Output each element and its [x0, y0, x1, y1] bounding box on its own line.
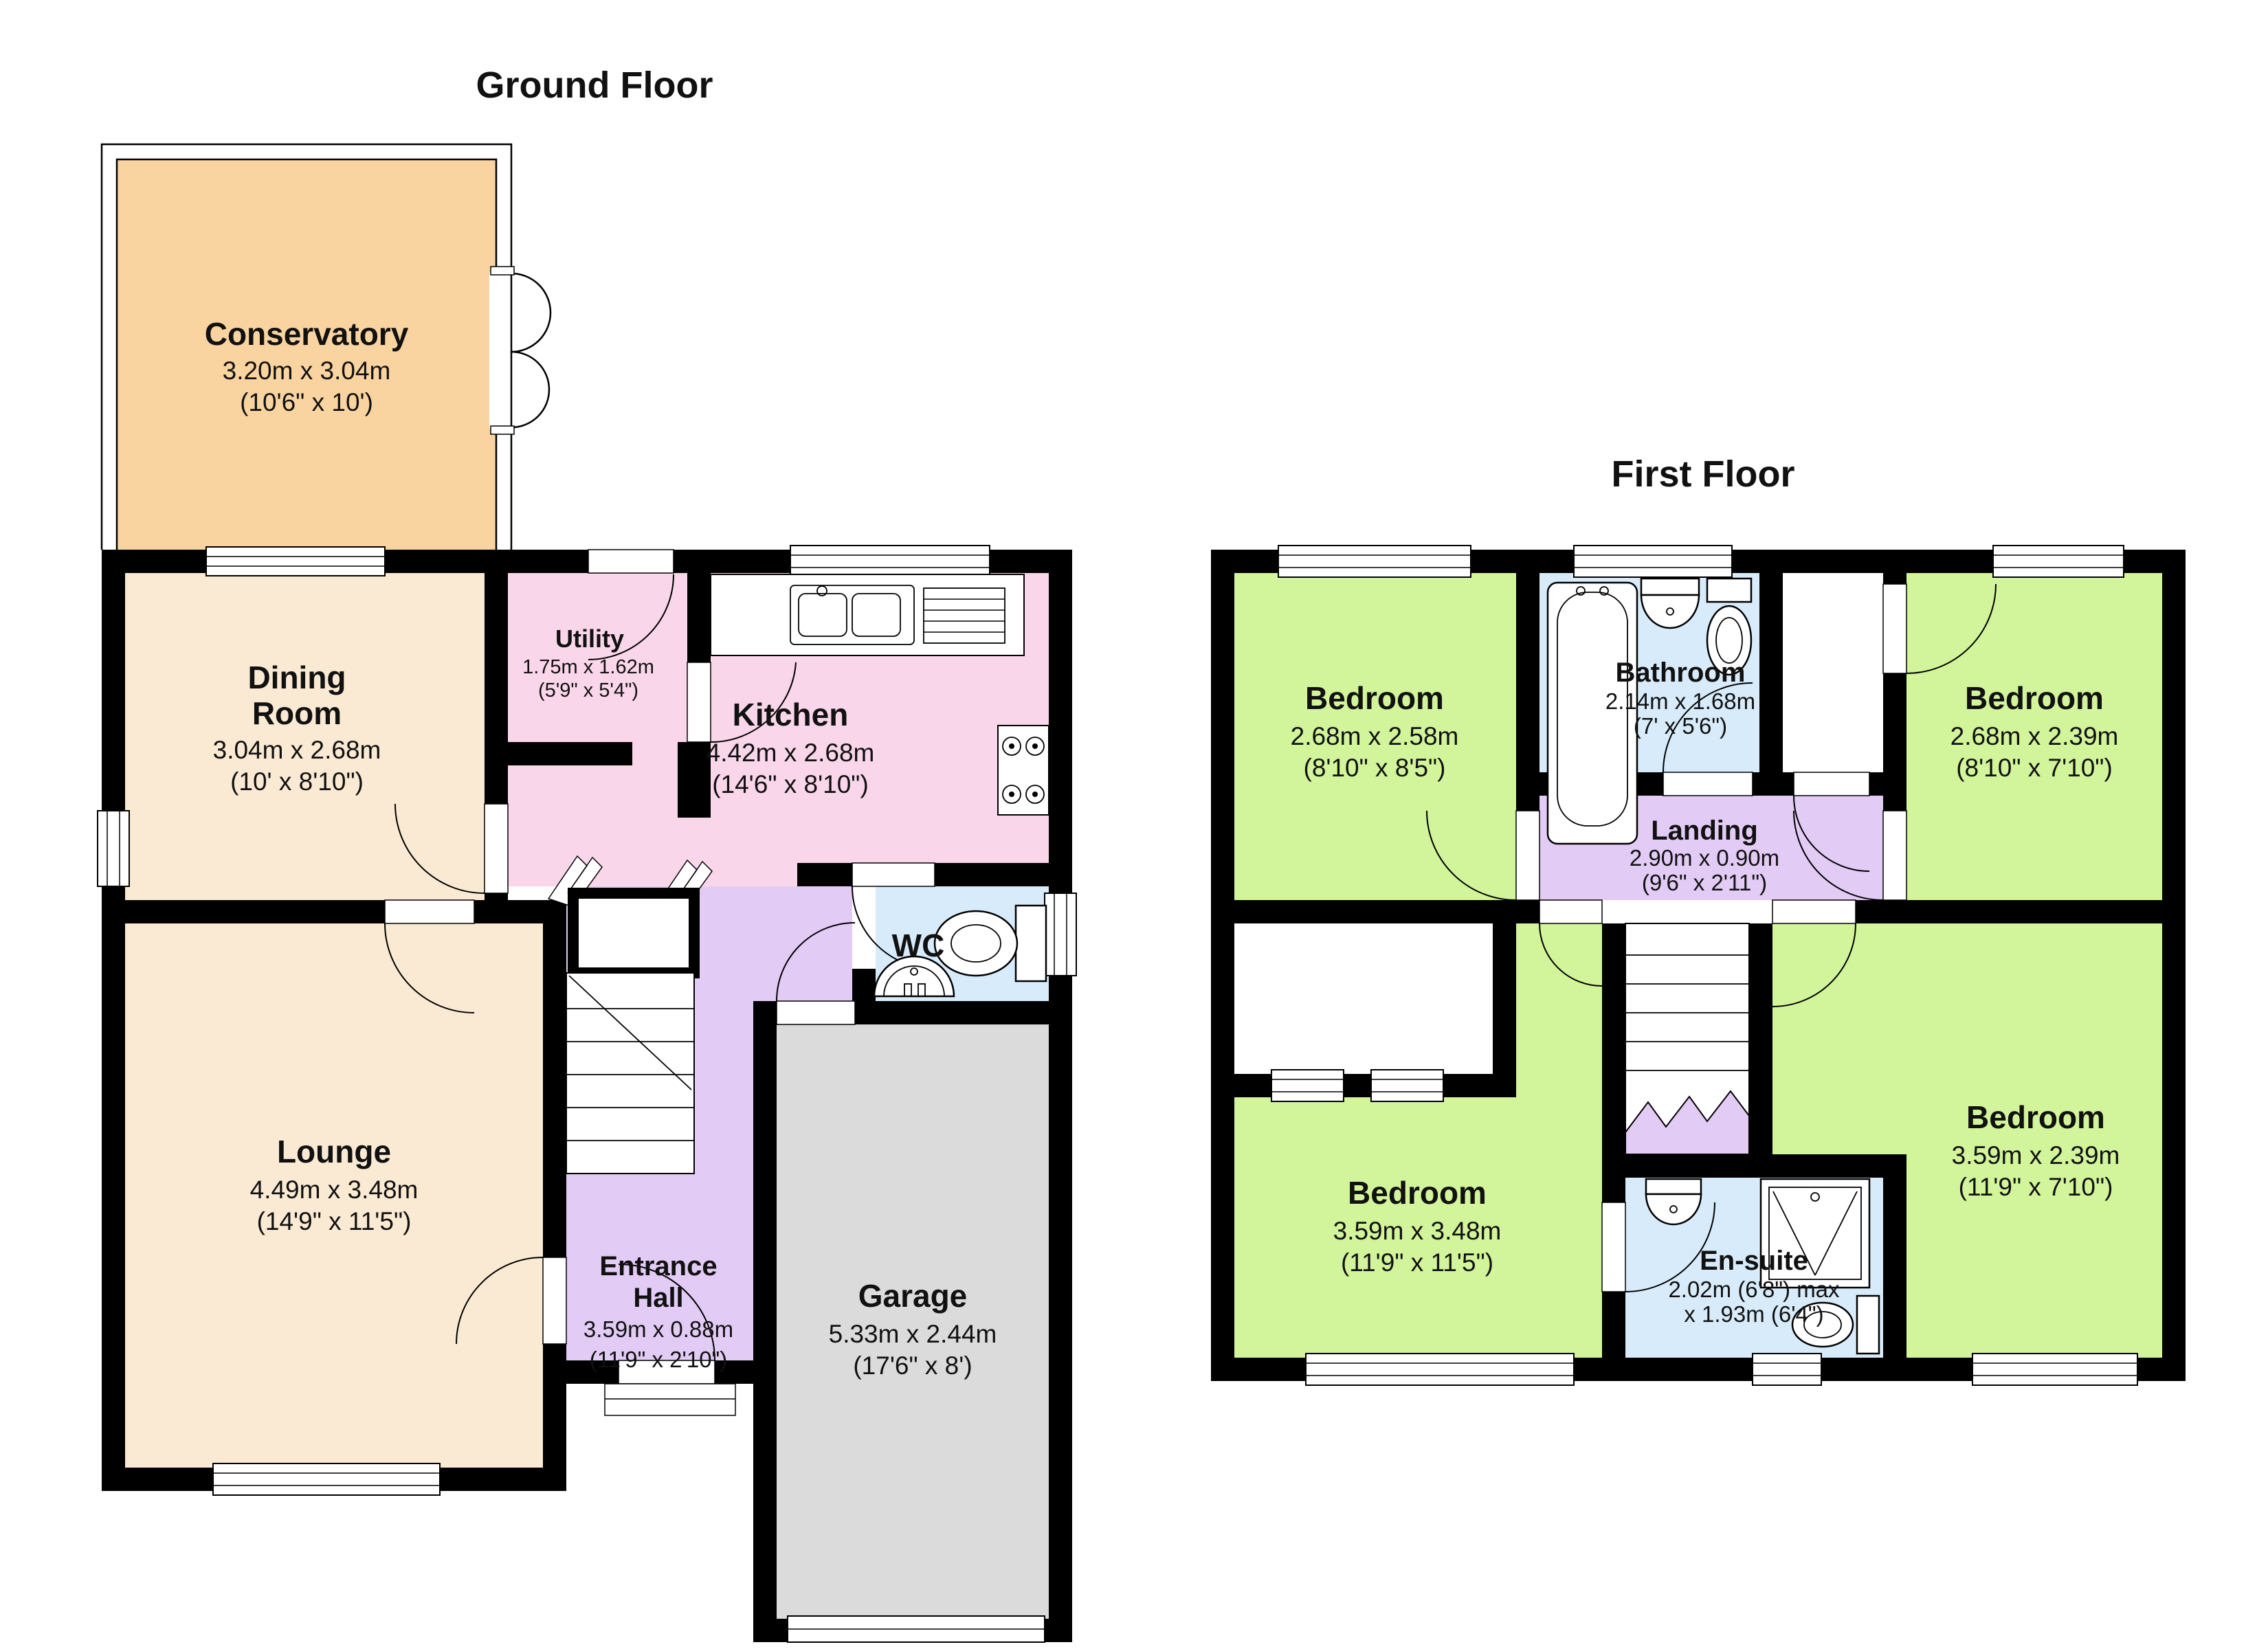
svg-text:(11'9" x 7'10"): (11'9" x 7'10") — [1959, 1173, 2113, 1201]
wall — [1211, 1074, 1516, 1097]
bedroom4-window — [1972, 1354, 2137, 1385]
svg-text:Hall: Hall — [633, 1283, 683, 1313]
lounge-window — [213, 1463, 440, 1495]
svg-text:2.68m x 2.58m: 2.68m x 2.58m — [1291, 722, 1459, 750]
wall — [852, 969, 876, 1001]
bedroom2-door-gap — [1883, 811, 1906, 900]
wall — [753, 1024, 777, 1642]
bedroom4-door-gap — [1772, 900, 1856, 923]
svg-text:(14'6" x 8'10"): (14'6" x 8'10") — [712, 770, 869, 798]
wall — [1749, 923, 1772, 1178]
wall — [543, 900, 566, 1491]
svg-text:Bedroom: Bedroom — [1305, 680, 1444, 716]
bedroom3-window — [1306, 1354, 1574, 1385]
bedroom1-window — [1278, 546, 1471, 577]
label-bedroom-2: Bedroom 2.68m x 2.39m (8'10" x 7'10") — [1950, 680, 2119, 782]
svg-text:3.59m x 0.88m: 3.59m x 0.88m — [583, 1316, 733, 1342]
svg-text:2.14m x 1.68m: 2.14m x 1.68m — [1605, 688, 1755, 714]
dining-door-gap — [485, 804, 508, 893]
svg-text:5.33m x 2.44m: 5.33m x 2.44m — [829, 1320, 997, 1348]
svg-text:Room: Room — [252, 695, 342, 731]
label-landing: Landing 2.90m x 0.90m (9'6" x 2'11") — [1630, 816, 1779, 895]
svg-text:4.49m x 3.48m: 4.49m x 3.48m — [250, 1176, 419, 1204]
door-jamb — [491, 267, 514, 275]
wall — [508, 742, 632, 765]
svg-text:Landing: Landing — [1651, 816, 1758, 846]
wc-door-gap — [852, 863, 935, 886]
room-conservatory — [117, 159, 496, 550]
svg-text:(9'6" x 2'11"): (9'6" x 2'11") — [1642, 870, 1767, 895]
front-door-step — [605, 1384, 735, 1415]
bedroom2-window — [1993, 546, 2124, 577]
utility-kitchen-door-gap — [687, 662, 711, 742]
bathroom-door-gap — [1663, 772, 1753, 796]
wall — [1211, 573, 1234, 1358]
svg-text:Utility: Utility — [555, 625, 624, 653]
floor-plan-first: First Floor Bedroom 2.68m x 2.58m (8'10"… — [1211, 453, 2186, 1385]
svg-text:(10' x 8'10"): (10' x 8'10") — [230, 767, 364, 796]
label-bedroom-1: Bedroom 2.68m x 2.58m (8'10" x 8'5") — [1291, 680, 1459, 782]
svg-text:3.59m x 2.39m: 3.59m x 2.39m — [1952, 1141, 2120, 1169]
svg-text:Conservatory: Conservatory — [205, 316, 409, 352]
room-bedroom-3 — [1234, 923, 1602, 1358]
wall — [687, 573, 711, 662]
ensuite-window — [1753, 1354, 1821, 1385]
wall — [1602, 923, 1625, 1178]
svg-text:Kitchen: Kitchen — [733, 697, 849, 732]
svg-text:(8'10" x 7'10"): (8'10" x 7'10") — [1956, 754, 2113, 782]
floorplan-drawing: Ground Floor Conservatory 3.20m x 3.04m … — [0, 0, 2268, 1649]
kitchen-counter — [711, 574, 1024, 655]
svg-text:(11'9" x 2'10"): (11'9" x 2'10") — [590, 1347, 728, 1372]
hob-icon — [998, 726, 1049, 815]
stairs-ground — [566, 973, 694, 1174]
cupboard-door-gap — [1883, 584, 1906, 673]
floorplan-page: Ground Floor Conservatory 3.20m x 3.04m … — [0, 0, 2268, 1649]
understairs-cupboard — [573, 893, 694, 973]
label-bedroom-4: Bedroom 3.59m x 2.39m (11'9" x 7'10") — [1952, 1099, 2120, 1201]
label-bedroom-3: Bedroom 3.59m x 3.48m (11'9" x 11'5") — [1333, 1175, 1502, 1277]
stairs-first — [1625, 923, 1749, 1154]
svg-text:(5'9" x 5'4"): (5'9" x 5'4") — [538, 680, 638, 702]
wc-window — [1045, 893, 1076, 976]
floor-plan-ground: Ground Floor Conservatory 3.20m x 3.04m … — [98, 65, 1076, 1642]
door-jamb — [491, 426, 514, 434]
svg-text:(17'6" x 8'): (17'6" x 8') — [853, 1351, 972, 1380]
utility-door-gap — [588, 550, 674, 573]
wall — [1049, 550, 1072, 1642]
wall — [1883, 900, 2186, 923]
svg-text:Dining: Dining — [247, 660, 346, 695]
kitchen-window — [790, 546, 990, 577]
garage-door-gap — [777, 1001, 855, 1024]
svg-text:(7' x 5'6"): (7' x 5'6") — [1634, 713, 1727, 739]
svg-text:Entrance: Entrance — [599, 1251, 717, 1281]
svg-text:3.59m x 3.48m: 3.59m x 3.48m — [1333, 1217, 1502, 1245]
wall — [1211, 900, 1539, 923]
toilet-icon — [935, 906, 1046, 981]
svg-text:(11'9" x 11'5"): (11'9" x 11'5") — [1341, 1248, 1493, 1277]
dining-window — [98, 811, 129, 886]
wall — [1883, 1178, 1906, 1358]
ensuite-door-gap — [1602, 1202, 1625, 1292]
svg-text:4.42m x 2.68m: 4.42m x 2.68m — [707, 739, 875, 767]
wall — [2162, 573, 2186, 1358]
wall — [102, 573, 125, 1491]
svg-text:x 1.93m (6'4"): x 1.93m (6'4") — [1684, 1301, 1823, 1327]
svg-text:(8'10" x 8'5"): (8'10" x 8'5") — [1304, 754, 1446, 782]
svg-text:Bedroom: Bedroom — [1965, 680, 2104, 716]
svg-text:(14'9" x 11'5"): (14'9" x 11'5") — [257, 1207, 412, 1235]
patio-opening — [206, 547, 385, 576]
bedroom1-door-gap — [1516, 811, 1539, 900]
first-floor-title: First Floor — [1612, 453, 1795, 495]
svg-text:(10'6" x 10'): (10'6" x 10') — [240, 388, 373, 416]
svg-text:2.68m x 2.39m: 2.68m x 2.39m — [1950, 722, 2119, 750]
svg-text:En-suite: En-suite — [1700, 1246, 1808, 1276]
french-door-leaf — [511, 273, 551, 352]
svg-text:2.90m x 0.90m: 2.90m x 0.90m — [1630, 845, 1779, 871]
svg-text:Bedroom: Bedroom — [1348, 1175, 1487, 1211]
svg-text:Bathroom: Bathroom — [1616, 658, 1746, 688]
ground-floor-title: Ground Floor — [476, 65, 713, 106]
wall — [1493, 923, 1516, 1097]
wall — [1856, 900, 1883, 923]
label-wc: WC — [892, 928, 945, 963]
bedroom3-door-gap — [1539, 900, 1602, 923]
wall — [1602, 1154, 1906, 1178]
bathroom-window — [1574, 546, 1732, 577]
garage-vehicle-door — [788, 1616, 1045, 1642]
svg-text:Bedroom: Bedroom — [1966, 1099, 2105, 1135]
svg-text:1.75m x 1.62m: 1.75m x 1.62m — [522, 656, 654, 678]
svg-text:Garage: Garage — [858, 1278, 968, 1314]
french-door-leaf — [511, 352, 549, 427]
wall — [1759, 573, 1783, 796]
lounge-dining-door-gap — [385, 900, 474, 923]
svg-text:3.20m x 3.04m: 3.20m x 3.04m — [223, 357, 391, 385]
svg-text:2.02m (6'8") max: 2.02m (6'8") max — [1668, 1277, 1840, 1302]
cupboard-landing-door-gap — [1794, 772, 1869, 796]
svg-text:Lounge: Lounge — [277, 1134, 391, 1169]
lounge-hall-door-gap — [543, 1257, 566, 1344]
wall — [125, 900, 543, 923]
svg-text:3.04m x 2.68m: 3.04m x 2.68m — [213, 736, 381, 764]
